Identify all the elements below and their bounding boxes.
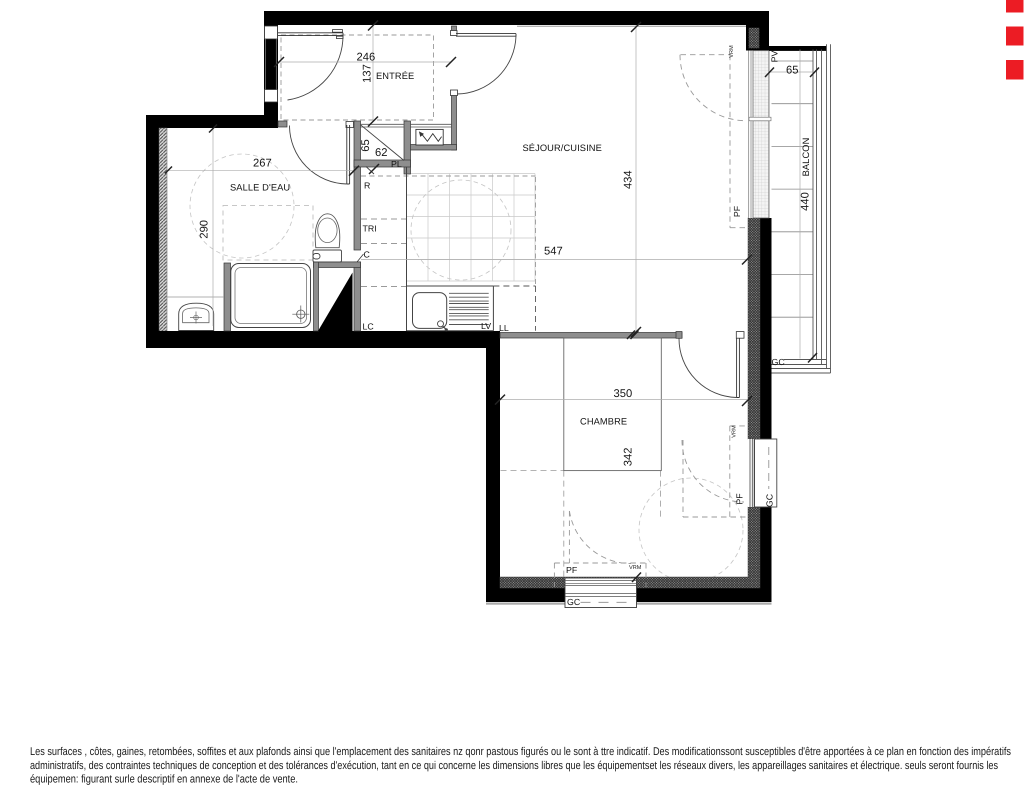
svg-text:547: 547 (544, 246, 563, 258)
svg-text:CHAMBRE: CHAMBRE (580, 417, 627, 427)
svg-text:GC: GC (567, 597, 581, 607)
svg-text:BALCON: BALCON (801, 138, 811, 177)
svg-text:62: 62 (375, 147, 387, 159)
svg-text:PF: PF (732, 205, 742, 217)
svg-text:PV: PV (770, 51, 780, 63)
svg-text:GC: GC (772, 357, 786, 367)
svg-text:65: 65 (360, 139, 372, 151)
svg-text:SÉJOUR/CUISINE: SÉJOUR/CUISINE (523, 142, 602, 153)
svg-text:Les surfaces , côtes, gaines,: Les surfaces , côtes, gaines, retombées,… (30, 746, 1011, 758)
svg-text:350: 350 (614, 388, 633, 400)
svg-text:ENTRÉE: ENTRÉE (376, 70, 414, 81)
svg-text:VRM: VRM (732, 425, 738, 438)
svg-text:267: 267 (253, 158, 272, 170)
svg-text:290: 290 (199, 220, 211, 239)
svg-text:équipemen: figurant surle desc: équipemen: figurant surle descriptif en … (30, 774, 298, 786)
svg-text:LL: LL (499, 323, 509, 333)
svg-text:342: 342 (623, 448, 635, 467)
svg-text:PF: PF (735, 493, 745, 505)
svg-text:137: 137 (362, 64, 374, 83)
svg-text:GC: GC (765, 493, 775, 507)
svg-text:LC: LC (363, 322, 375, 332)
svg-text:PF: PF (566, 565, 578, 575)
svg-text:PL: PL (391, 159, 402, 169)
svg-text:440: 440 (800, 192, 812, 211)
svg-text:246: 246 (357, 52, 376, 64)
svg-text:administratifs, des contrainte: administratifs, des contraintes techniqu… (30, 760, 998, 772)
svg-text:LV: LV (481, 321, 491, 331)
svg-text:434: 434 (622, 170, 634, 189)
svg-text:TRI: TRI (363, 224, 377, 234)
svg-text:VRM: VRM (629, 565, 642, 571)
svg-text:SALLE D'EAU: SALLE D'EAU (230, 183, 290, 193)
svg-text:C: C (364, 250, 371, 260)
svg-text:VRM: VRM (729, 45, 735, 58)
svg-text:R: R (364, 181, 370, 191)
svg-text:65: 65 (786, 65, 798, 77)
